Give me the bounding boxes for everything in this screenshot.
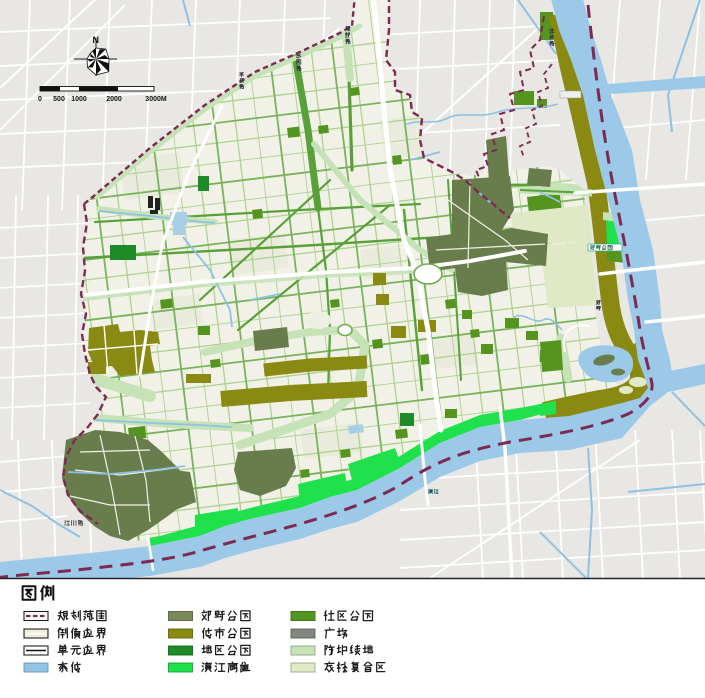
svg-text:2000: 2000 bbox=[106, 96, 122, 103]
svg-text:1000: 1000 bbox=[71, 96, 87, 103]
svg-text:0: 0 bbox=[38, 96, 42, 103]
svg-text:3000M: 3000M bbox=[145, 96, 167, 103]
svg-text:500: 500 bbox=[53, 96, 65, 103]
svg-text:N: N bbox=[93, 35, 100, 45]
